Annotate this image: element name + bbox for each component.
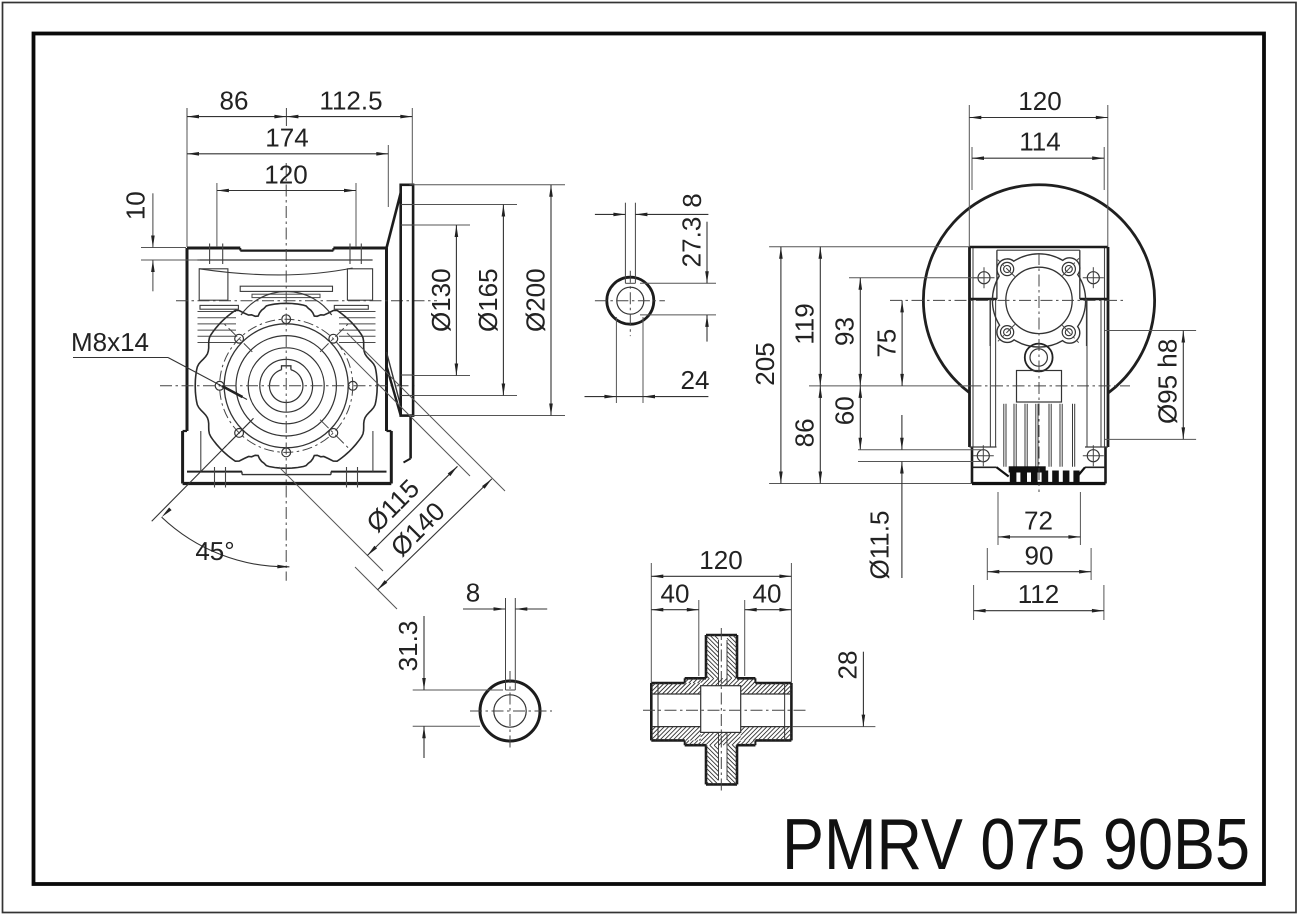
- svg-text:31.3: 31.3: [393, 621, 423, 672]
- svg-text:40: 40: [661, 578, 690, 608]
- svg-text:60: 60: [830, 396, 860, 425]
- svg-text:40: 40: [753, 578, 782, 608]
- svg-text:27.3: 27.3: [677, 217, 707, 268]
- svg-text:93: 93: [830, 317, 860, 346]
- svg-text:45°: 45°: [195, 536, 234, 566]
- svg-text:112: 112: [1018, 579, 1059, 609]
- svg-text:112.5: 112.5: [319, 85, 382, 115]
- svg-text:75: 75: [872, 329, 902, 358]
- svg-text:M8x14: M8x14: [71, 327, 149, 357]
- svg-text:24: 24: [681, 365, 710, 395]
- svg-text:8: 8: [677, 193, 707, 207]
- svg-text:86: 86: [220, 85, 249, 115]
- svg-text:90: 90: [1025, 540, 1054, 570]
- svg-text:Ø130: Ø130: [426, 268, 456, 332]
- svg-text:Ø165: Ø165: [473, 268, 503, 332]
- svg-text:10: 10: [121, 191, 151, 220]
- svg-text:PMRV 075 90B5: PMRV 075 90B5: [782, 805, 1250, 885]
- svg-text:119: 119: [790, 303, 820, 344]
- svg-text:120: 120: [699, 545, 742, 575]
- svg-text:28: 28: [833, 651, 863, 680]
- svg-text:8: 8: [466, 577, 480, 607]
- svg-text:72: 72: [1024, 505, 1053, 535]
- svg-text:205: 205: [750, 342, 780, 385]
- svg-text:120: 120: [264, 159, 307, 189]
- svg-text:86: 86: [790, 418, 820, 447]
- svg-text:114: 114: [1019, 126, 1060, 156]
- svg-text:Ø95 h8: Ø95 h8: [1153, 339, 1183, 424]
- svg-text:174: 174: [265, 122, 308, 152]
- svg-text:120: 120: [1018, 86, 1061, 116]
- svg-text:Ø11.5: Ø11.5: [865, 511, 895, 580]
- svg-text:Ø200: Ø200: [521, 268, 551, 332]
